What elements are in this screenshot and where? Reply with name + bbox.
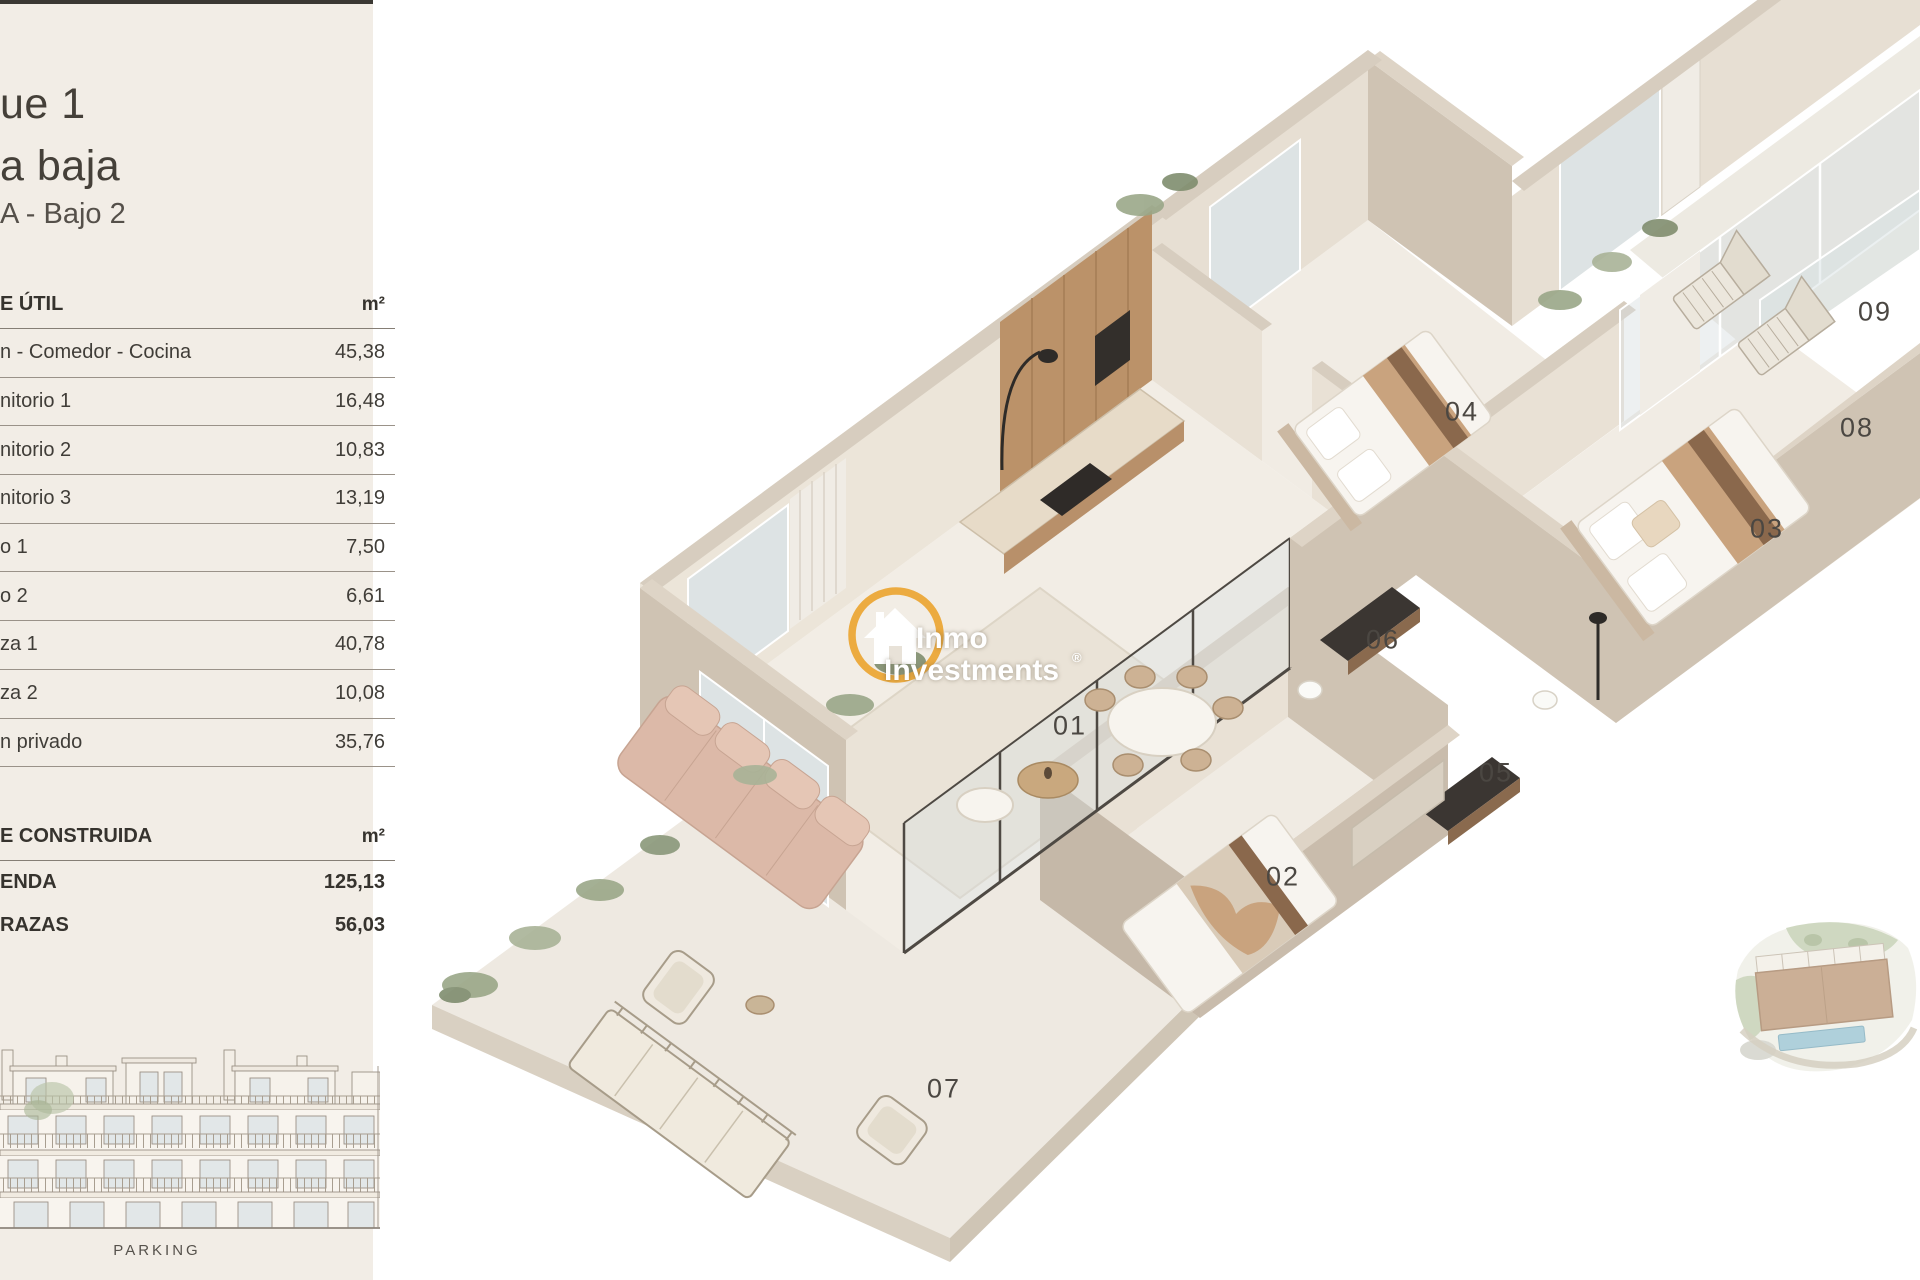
unit-subtitle: A - Bajo 2 [0, 198, 126, 231]
surface-util-rows: n - Comedor - Cocina45,38nitorio 116,48n… [0, 329, 395, 767]
inmo-investments-logo: Inmo Investments ® [838, 570, 1088, 695]
row-label: RAZAS [0, 914, 69, 937]
building-elevation-drawing [0, 1032, 380, 1232]
surface-util-row: nitorio 210,83 [0, 426, 395, 475]
row-value: 13,19 [335, 487, 395, 510]
row-label: nitorio 3 [0, 487, 71, 510]
surface-util-unit: m² [362, 294, 395, 316]
row-value: 35,76 [335, 731, 395, 754]
row-label: o 2 [0, 585, 28, 608]
brochure-page: Inmo Investments ® 010 [0, 0, 1920, 1280]
row-value: 7,50 [346, 536, 395, 559]
surface-util-row: o 17,50 [0, 524, 395, 573]
surface-util-table: E ÚTIL m² n - Comedor - Cocina45,38nitor… [0, 281, 395, 767]
row-label: n - Comedor - Cocina [0, 341, 191, 364]
row-value: 125,13 [324, 871, 395, 894]
surface-util-row: n privado35,76 [0, 719, 395, 768]
row-label: za 2 [0, 682, 38, 705]
row-label: o 1 [0, 536, 28, 559]
row-value: 10,08 [335, 682, 395, 705]
left-panel-content: ue 1 a baja A - Bajo 2 E ÚTIL m² n - Com… [0, 0, 395, 1280]
surface-util-header: E ÚTIL m² [0, 281, 395, 329]
row-value: 6,61 [346, 585, 395, 608]
surface-util-row: n - Comedor - Cocina45,38 [0, 329, 395, 378]
row-label: nitorio 2 [0, 439, 71, 462]
row-label: n privado [0, 731, 82, 754]
logo-line2: Investments [884, 654, 1059, 687]
surface-construida-rows: ENDA125,13RAZAS56,03 [0, 861, 395, 947]
row-value: 45,38 [335, 341, 395, 364]
room-number-label: 08 [1840, 413, 1874, 444]
floor-title: a baja [0, 142, 120, 191]
surface-util-row: o 26,61 [0, 572, 395, 621]
surface-util-row: nitorio 313,19 [0, 475, 395, 524]
surface-construida-unit: m² [362, 826, 395, 848]
room-number-label: 03 [1750, 514, 1784, 545]
room-number-label: 01 [1053, 711, 1087, 742]
surface-util-row: za 210,08 [0, 670, 395, 719]
surface-construida-table: E CONSTRUIDA m² ENDA125,13RAZAS56,03 [0, 813, 395, 947]
surface-construida-row: RAZAS56,03 [0, 904, 395, 947]
room-number-label: 02 [1266, 862, 1300, 893]
row-label: nitorio 1 [0, 390, 71, 413]
room-number-label: 05 [1479, 758, 1513, 789]
surface-construida-row: ENDA125,13 [0, 861, 395, 904]
row-value: 40,78 [335, 633, 395, 656]
surface-construida-header: E CONSTRUIDA m² [0, 813, 395, 861]
surface-construida-header-label: E CONSTRUIDA [0, 825, 152, 848]
row-value: 10,83 [335, 439, 395, 462]
surface-util-header-label: E ÚTIL [0, 293, 63, 316]
room-number-label: 07 [927, 1074, 961, 1105]
room-number-label: 09 [1858, 297, 1892, 328]
room-number-label: 06 [1366, 625, 1400, 656]
top-border-line [0, 0, 373, 4]
row-value: 56,03 [335, 914, 395, 937]
surface-util-row: za 140,78 [0, 621, 395, 670]
logo-line1: Inmo [916, 622, 988, 655]
registered-mark: ® [1072, 650, 1082, 665]
row-value: 16,48 [335, 390, 395, 413]
row-label: za 1 [0, 633, 38, 656]
block-title: ue 1 [0, 80, 86, 129]
row-label: ENDA [0, 871, 57, 894]
site-plan-map [1728, 908, 1920, 1098]
parking-caption: PARKING [0, 1242, 314, 1259]
room-number-label: 04 [1445, 397, 1479, 428]
surface-util-row: nitorio 116,48 [0, 378, 395, 427]
